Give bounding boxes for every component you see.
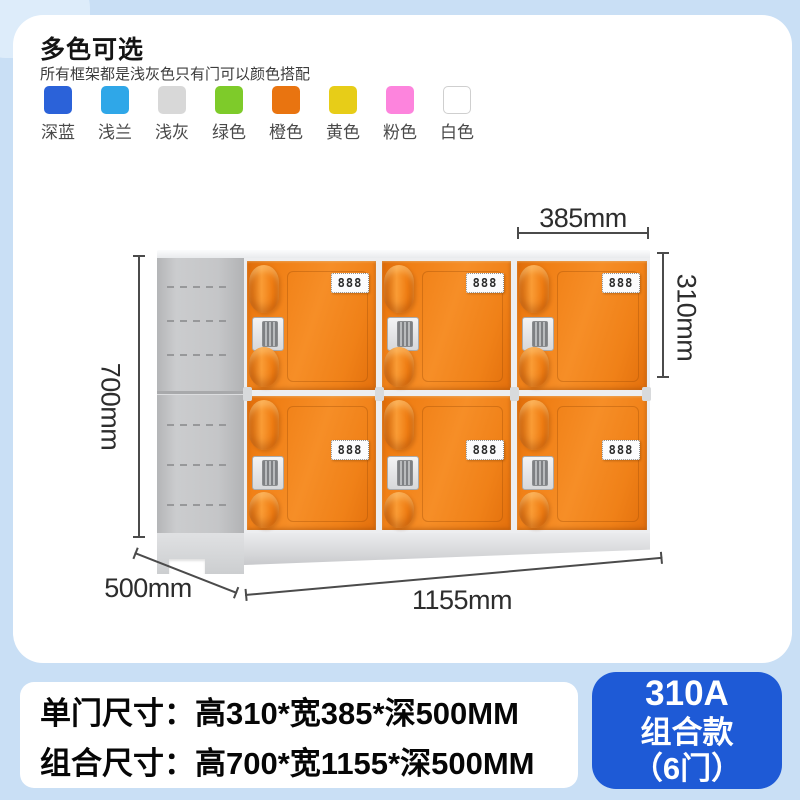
swatch-color-icon bbox=[101, 86, 129, 114]
locker-door[interactable]: 888 bbox=[517, 396, 647, 530]
color-swatch-pink[interactable]: 粉色 bbox=[382, 86, 418, 143]
spec-box: 单门尺寸：高310*宽385*深500MM 组合尺寸：高700*宽1155*深5… bbox=[20, 682, 578, 788]
side-groove-line bbox=[167, 286, 231, 288]
dimension-line-door-height bbox=[662, 252, 664, 378]
swatch-color-icon bbox=[272, 86, 300, 114]
dimension-tick bbox=[133, 536, 145, 538]
door-hinge-top bbox=[384, 400, 414, 450]
swatch-color-icon bbox=[386, 86, 414, 114]
page-subtitle: 所有框架都是浅灰色只有门可以颜色搭配 bbox=[40, 63, 310, 84]
seam-cap bbox=[510, 387, 519, 401]
door-number-plate: 888 bbox=[466, 440, 504, 460]
dimension-tick bbox=[647, 227, 649, 239]
door-lock-handle[interactable] bbox=[387, 317, 419, 351]
dimension-tick bbox=[657, 252, 669, 254]
door-hinge-bottom bbox=[384, 492, 414, 528]
swatch-label: 橙色 bbox=[269, 118, 303, 143]
dimension-label-door-width: 385mm bbox=[523, 203, 643, 234]
page-title: 多色可选 bbox=[40, 30, 144, 66]
color-swatch-white[interactable]: 白色 bbox=[439, 86, 475, 143]
door-hinge-top bbox=[249, 265, 279, 313]
dimension-line-total-height bbox=[138, 255, 140, 538]
side-groove-line bbox=[167, 320, 231, 322]
model-badge: 310A 组合款 （6门） bbox=[592, 672, 782, 789]
side-groove-line bbox=[167, 354, 231, 356]
door-hinge-bottom bbox=[249, 492, 279, 528]
swatch-color-icon bbox=[44, 86, 72, 114]
locker-front-face: 888 888 888 888 bbox=[244, 258, 650, 533]
swatch-label: 白色 bbox=[440, 118, 474, 143]
locker-door[interactable]: 888 bbox=[382, 396, 511, 530]
locker-side-panel bbox=[157, 258, 244, 533]
model-code: 310A bbox=[645, 674, 729, 715]
color-swatch-green[interactable]: 绿色 bbox=[211, 86, 247, 143]
door-number-plate: 888 bbox=[602, 440, 640, 460]
color-swatch-light-blue[interactable]: 浅兰 bbox=[97, 86, 133, 143]
door-lock-handle[interactable] bbox=[522, 456, 554, 490]
door-groove bbox=[422, 406, 503, 522]
door-lock-handle[interactable] bbox=[252, 456, 284, 490]
color-swatch-yellow[interactable]: 黄色 bbox=[325, 86, 361, 143]
door-lock-handle[interactable] bbox=[387, 456, 419, 490]
swatch-label: 深蓝 bbox=[41, 118, 75, 143]
door-hinge-bottom bbox=[384, 347, 414, 387]
locker-door[interactable]: 888 bbox=[247, 261, 376, 390]
dimension-label-depth: 500mm bbox=[88, 573, 208, 604]
side-groove-line bbox=[167, 464, 231, 466]
door-number-plate: 888 bbox=[602, 273, 640, 293]
locker-door[interactable]: 888 bbox=[517, 261, 647, 390]
dimension-tick bbox=[517, 227, 519, 239]
spec-line-single-door: 单门尺寸：高310*宽385*深500MM bbox=[40, 688, 578, 733]
door-hinge-top bbox=[519, 265, 549, 313]
dimension-label-total-height: 700mm bbox=[95, 361, 126, 453]
swatch-label: 粉色 bbox=[383, 118, 417, 143]
dimension-tick bbox=[657, 376, 669, 378]
door-number-plate: 888 bbox=[331, 440, 369, 460]
swatch-color-icon bbox=[329, 86, 357, 114]
color-swatch-orange[interactable]: 橙色 bbox=[268, 86, 304, 143]
door-lock-handle[interactable] bbox=[522, 317, 554, 351]
door-groove bbox=[287, 406, 368, 522]
door-hinge-bottom bbox=[519, 347, 549, 387]
color-swatch-row: 深蓝 浅兰 浅灰 绿色 橙色 黄色 粉色 白色 bbox=[40, 86, 475, 143]
dimension-tick bbox=[133, 255, 145, 257]
door-hinge-top bbox=[384, 265, 414, 313]
side-seam-line bbox=[157, 391, 244, 394]
locker-door[interactable]: 888 bbox=[382, 261, 511, 390]
dimension-label-total-width: 1155mm bbox=[392, 585, 532, 616]
door-hinge-top bbox=[249, 400, 279, 450]
door-hinge-bottom bbox=[249, 347, 279, 387]
swatch-label: 浅兰 bbox=[98, 118, 132, 143]
swatch-color-icon bbox=[443, 86, 471, 114]
swatch-label: 浅灰 bbox=[155, 118, 189, 143]
model-doors: （6门） bbox=[632, 751, 742, 787]
door-lock-handle[interactable] bbox=[252, 317, 284, 351]
seam-cap bbox=[243, 387, 252, 401]
swatch-label: 绿色 bbox=[212, 118, 246, 143]
side-groove-line bbox=[167, 504, 231, 506]
dimension-label-door-height: 310mm bbox=[671, 272, 702, 364]
door-hinge-top bbox=[519, 400, 549, 450]
seam-cap bbox=[375, 387, 384, 401]
spec-line-combined: 组合尺寸：高700*宽1155*深500MM bbox=[40, 738, 578, 783]
swatch-label: 黄色 bbox=[326, 118, 360, 143]
page-background: 多色可选 所有框架都是浅灰色只有门可以颜色搭配 深蓝 浅兰 浅灰 绿色 橙色 黄… bbox=[0, 0, 800, 800]
seam-cap bbox=[642, 387, 651, 401]
door-number-plate: 888 bbox=[466, 273, 504, 293]
door-groove bbox=[557, 406, 639, 522]
color-swatch-light-gray[interactable]: 浅灰 bbox=[154, 86, 190, 143]
side-groove-line bbox=[167, 424, 231, 426]
locker-door[interactable]: 888 bbox=[247, 396, 376, 530]
swatch-color-icon bbox=[215, 86, 243, 114]
color-swatch-deep-blue[interactable]: 深蓝 bbox=[40, 86, 76, 143]
door-hinge-bottom bbox=[519, 492, 549, 528]
model-name: 组合款 bbox=[641, 715, 734, 751]
door-number-plate: 888 bbox=[331, 273, 369, 293]
swatch-color-icon bbox=[158, 86, 186, 114]
